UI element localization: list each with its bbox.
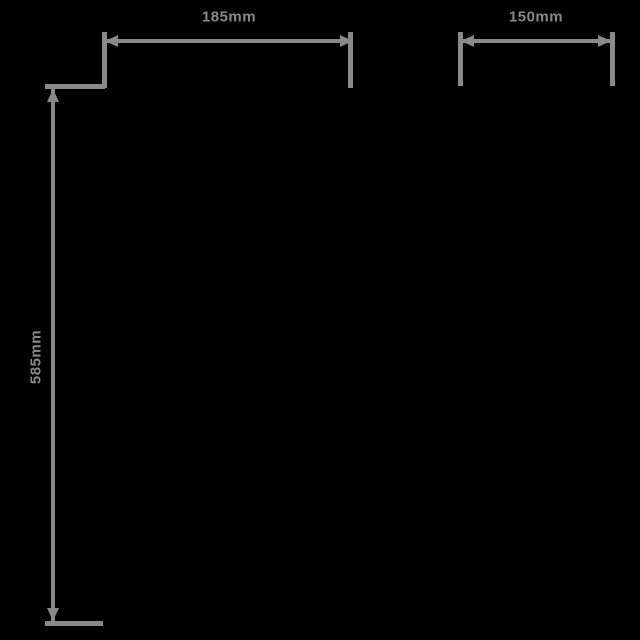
arrow-down-icon (47, 608, 59, 621)
arrow-up-icon (47, 89, 59, 102)
left-height-extension-line-bottom (45, 621, 103, 626)
top-right-width-extension-line-right (610, 32, 615, 86)
left-height-label: 585mm (28, 330, 45, 384)
top-width-extension-line-left (102, 32, 107, 88)
left-height-dimension-line (51, 89, 55, 621)
top-width-dimension-line (105, 39, 353, 43)
top-right-width-label: 150mm (509, 9, 563, 26)
dimension-diagram: 185mm 150mm 585mm (0, 0, 640, 640)
top-width-extension-line-right (348, 32, 353, 88)
top-right-width-extension-line-left (458, 32, 463, 86)
top-right-width-dimension-line (461, 39, 611, 43)
top-width-label: 185mm (202, 9, 256, 26)
